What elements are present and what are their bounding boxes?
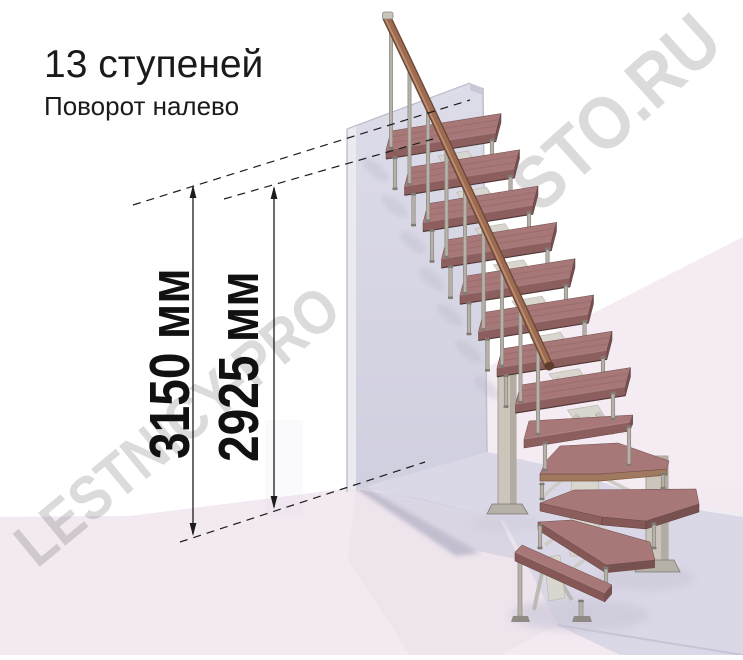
svg-text:2925 мм: 2925 мм — [207, 271, 271, 462]
svg-text:3150 мм: 3150 мм — [138, 268, 202, 459]
svg-text:Поворот налево: Поворот налево — [44, 91, 239, 121]
svg-text:13 ступеней: 13 ступеней — [44, 43, 263, 86]
